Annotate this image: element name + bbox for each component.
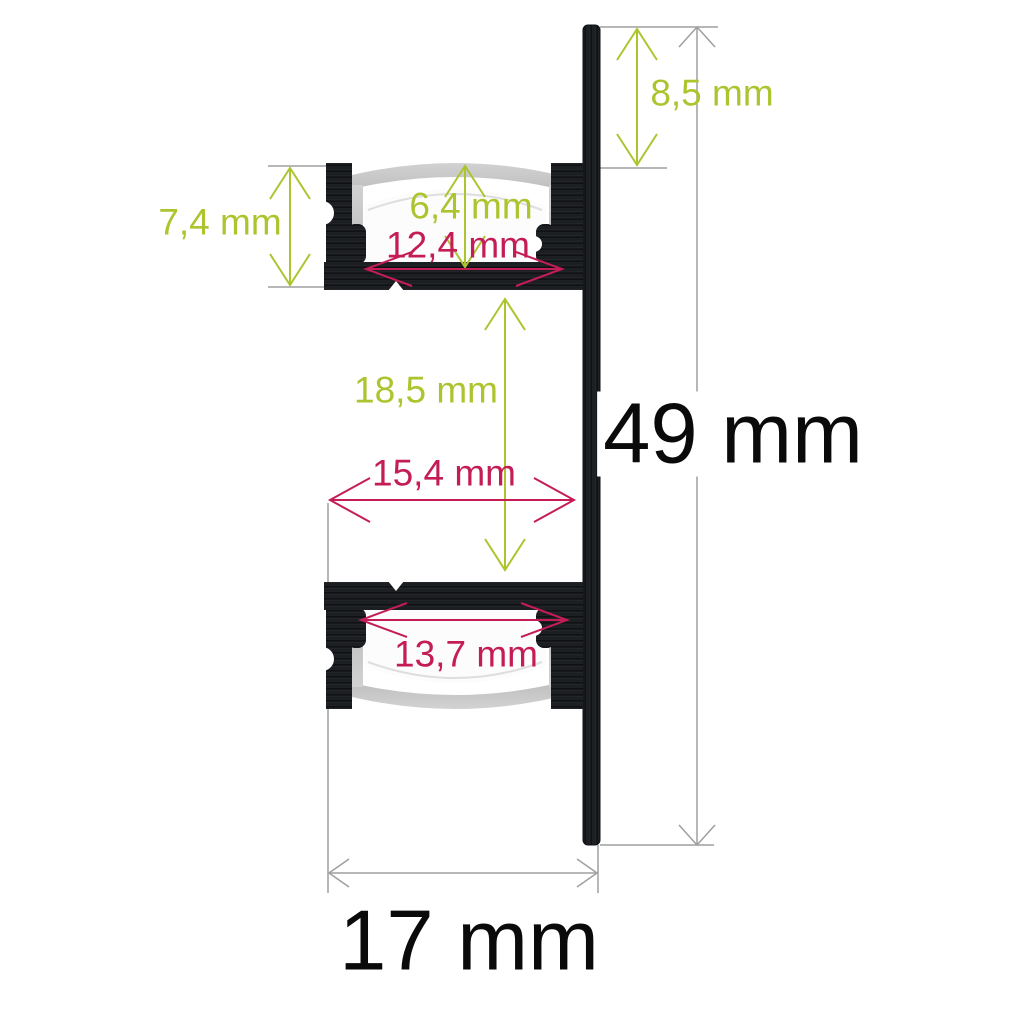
dim-label-lower-inner-width: 13,7 mm: [394, 636, 538, 673]
dim-label-upper-inner-height: 6,4 mm: [409, 188, 532, 225]
dim-label-top-offset: 8,5 mm: [650, 75, 773, 112]
dim-label-upper-inner-width: 12,4 mm: [386, 227, 530, 264]
dim-label-upper-channel-height: 7,4 mm: [158, 204, 281, 241]
dim-label-total-height: 49 mm: [597, 392, 869, 477]
profile-drawing: [0, 0, 1024, 1024]
dim-label-channel-gap-width: 15,4 mm: [372, 455, 516, 492]
dim-label-channel-gap-height: 18,5 mm: [354, 372, 498, 409]
channel-right-wall: [551, 163, 583, 264]
dim-label-total-depth: 17 mm: [339, 899, 599, 984]
pink-dimension-arrows: [330, 252, 574, 637]
diagram-canvas: 8,5 mm 7,4 mm 6,4 mm 12,4 mm 18,5 mm 15,…: [0, 0, 1024, 1024]
